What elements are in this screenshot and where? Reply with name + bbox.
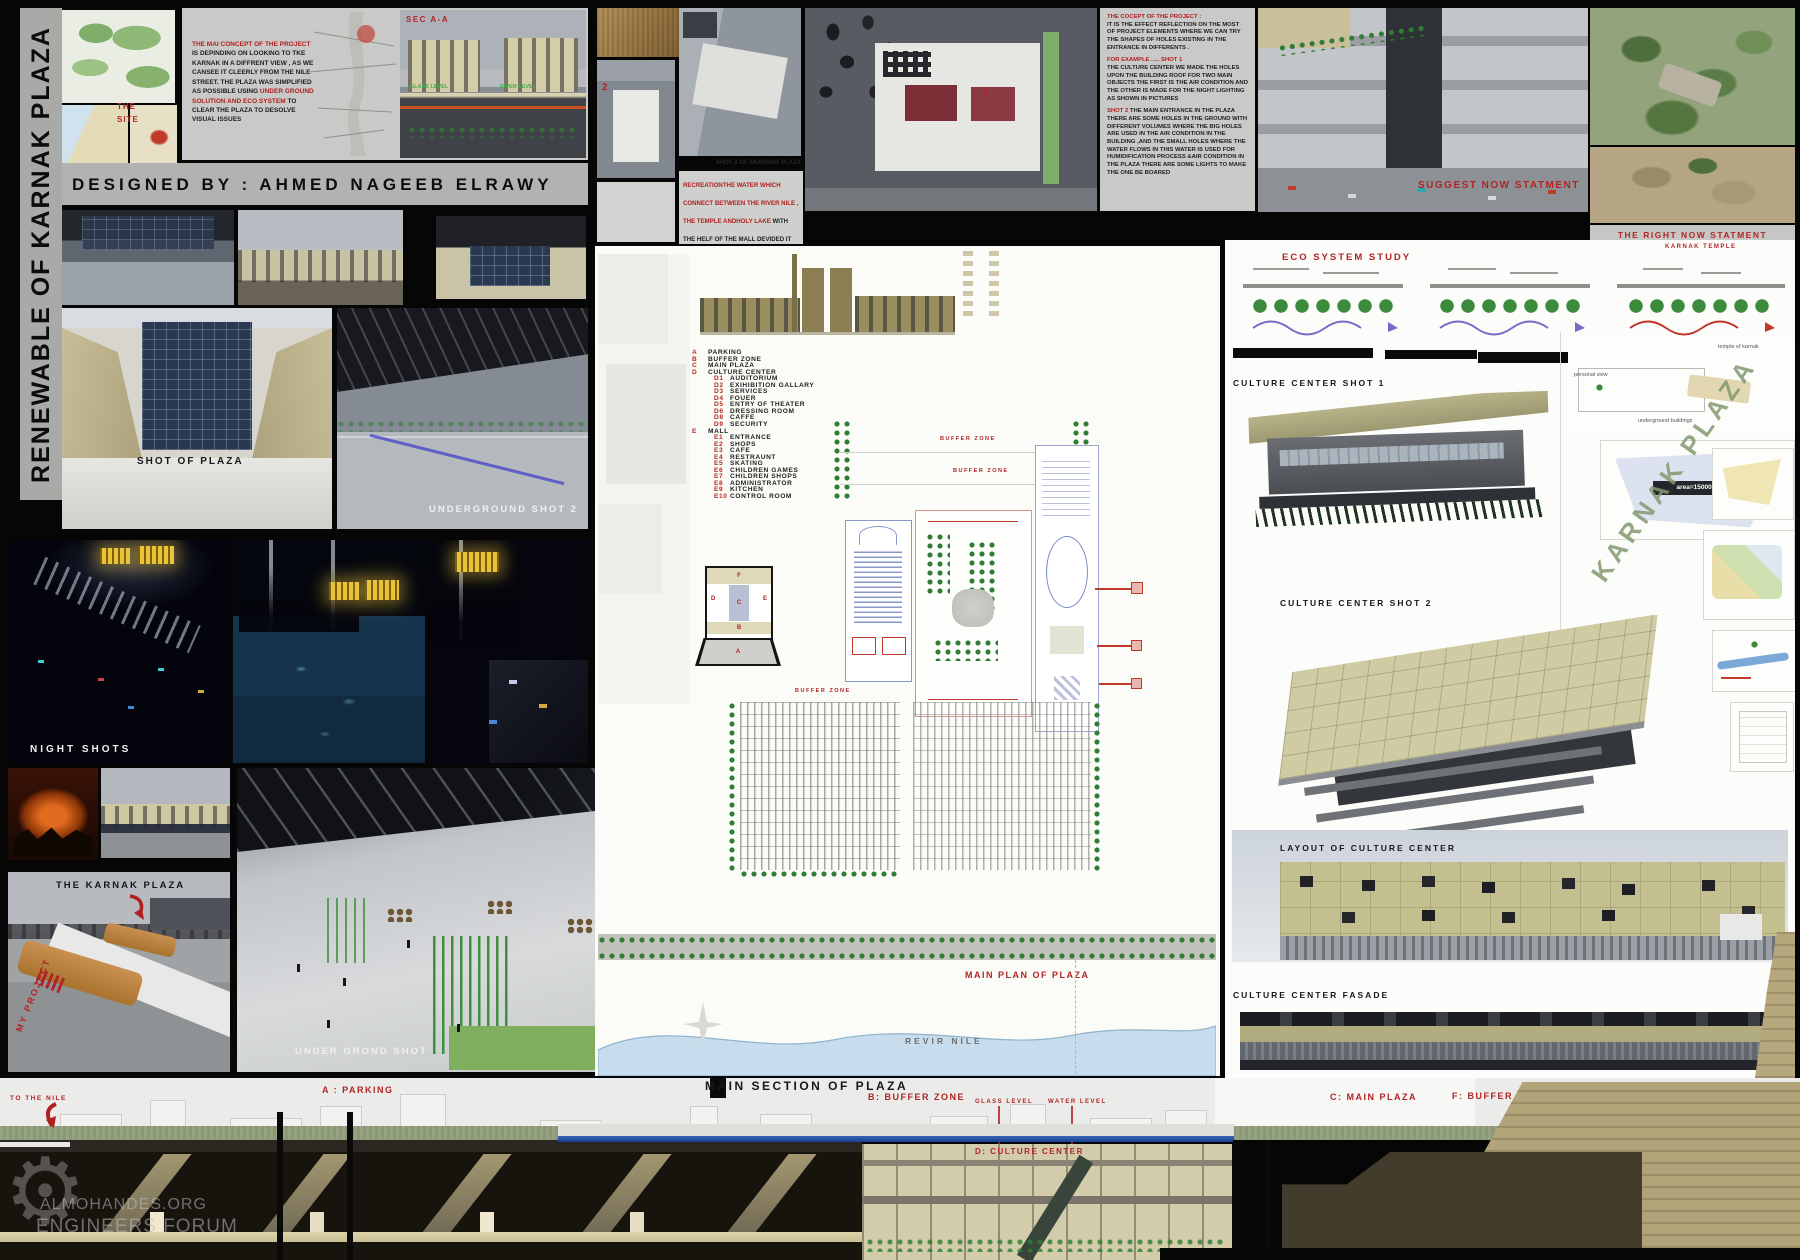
ramp-column — [721, 1154, 816, 1240]
green-strip — [1043, 32, 1059, 184]
nile-arrow-icon — [40, 1102, 62, 1128]
tree-cluster — [926, 533, 950, 597]
fasade-olive-band — [1240, 1026, 1788, 1042]
plants-row — [337, 420, 588, 432]
blank-panel — [597, 182, 675, 242]
fountain-blob — [952, 589, 994, 627]
river-label: REVIR NILE — [905, 1036, 983, 1046]
b-buffer-label: B: BUFFER ZONE — [868, 1092, 965, 1102]
funnel-sketch — [1723, 459, 1781, 505]
stage-arc — [859, 526, 897, 545]
fasade-top-band — [1240, 1012, 1788, 1026]
river-level-tag: RIVER LEVEL — [500, 84, 536, 90]
deck-line — [1243, 284, 1403, 288]
fasade-elevation-image — [1240, 1012, 1788, 1070]
temple-dark-silhouette — [1282, 1152, 1642, 1260]
water-line — [400, 106, 586, 109]
compass-star-icon — [683, 1002, 723, 1046]
karnak-temple-tag: KARNAK TEMPLE — [1665, 244, 1737, 250]
temple-wall-right — [855, 296, 955, 332]
section-post — [1266, 1140, 1271, 1260]
context-blocks-west — [598, 254, 690, 704]
night-shot-2 — [233, 540, 425, 763]
seat-rows — [854, 551, 902, 623]
shops-rows — [1042, 456, 1090, 516]
sec-aa-render: SEC A-A GLASS LEVEL RIVER LEVEL — [400, 10, 586, 158]
underground-shot2-caption: UNDERGROUND SHOT 2 — [429, 504, 578, 515]
section-trace-line — [1075, 960, 1077, 1074]
roof-light-dots — [509, 680, 517, 684]
bamboo-small — [327, 898, 372, 963]
glass-level-tag: GLASS LEVEL — [410, 84, 448, 90]
pylon-b — [830, 268, 852, 332]
dotted-colonnade — [963, 246, 973, 316]
concept-p3: THE MAIN ENTRANCE IN THE PLAZA THERE ARE… — [1107, 108, 1247, 175]
site-label: THE SITE — [117, 101, 139, 127]
mall-wing-plan — [1035, 445, 1099, 732]
site-sketch-box: temple of karnak personal view undergrou… — [1568, 338, 1793, 433]
concept-p1: IT IS THE EFFECT REFLECTION ON THE MOST … — [1107, 22, 1248, 53]
water-level-label: WATER LEVEL — [1048, 1099, 1107, 1105]
mini-diagram-4 — [1730, 702, 1794, 772]
road-band — [805, 188, 1097, 211]
layout-facade-image — [1280, 862, 1785, 960]
water-glints — [253, 630, 413, 760]
deck-line — [1430, 284, 1590, 288]
intro-panel: THE MAI CONCEPT OF THE PROJECT IS DEPIND… — [182, 8, 588, 160]
designed-by-text: DESIGNED BY : AHMED NAGEEB ELRAWY — [72, 175, 553, 195]
dark-building-cluster — [150, 898, 230, 930]
section-post — [277, 1112, 283, 1260]
shot-of-plaza-panel: SHOT OF PLAZA — [62, 308, 332, 529]
culture-shot1-caption: CULTURE CENTER SHOT 1 — [1233, 378, 1385, 388]
suggest-now-caption: SUGGEST NOW STATMENT — [1418, 180, 1580, 191]
recreation-text-block: RECREATIONTHE WATER WHICH CONNECT BETWEE… — [679, 171, 803, 244]
plaza-deck-band — [558, 1124, 1234, 1136]
obelisk — [792, 254, 797, 332]
lit-temple — [365, 580, 399, 600]
buffer-zone-label-2: BUFFER ZONE — [953, 468, 1009, 474]
eco-diagram-1 — [1243, 268, 1403, 340]
section-post — [1233, 1140, 1241, 1260]
temple-court-render — [101, 768, 230, 858]
karnak-plaza-panel: THE KARNAK PLAZA MY PROJECT — [8, 872, 230, 1072]
eco-diagram-2 — [1430, 268, 1590, 340]
designed-by-banner: DESIGNED BY : AHMED NAGEEB ELRAWY — [62, 163, 588, 205]
white-plaza-band — [692, 43, 787, 119]
fasade-base-band — [1240, 1060, 1788, 1070]
leader-target — [1131, 678, 1142, 689]
mini-diagram-1 — [1712, 448, 1794, 520]
deck-line — [1617, 284, 1785, 288]
leader-line — [1095, 588, 1133, 590]
legend-row: E10CONTROL ROOM — [692, 494, 910, 501]
tree-border — [740, 870, 900, 880]
mini-diagram-3 — [1712, 630, 1795, 692]
parking-lot-east — [913, 702, 1091, 870]
concept-panel: THE COCEPT OF THE PROJECT : IT IS THE EF… — [1100, 8, 1255, 211]
buffer-zone-label-1: BUFFER ZONE — [940, 436, 996, 442]
main-plan-caption: MAIN PLAN OF PLAZA — [965, 970, 1090, 980]
seating-cluster — [487, 900, 513, 914]
checker-court — [883, 51, 931, 77]
auditorium-plan — [845, 520, 912, 682]
nile-street-sketch — [304, 12, 400, 156]
leader-target — [1131, 640, 1142, 651]
night-shot-3 — [429, 540, 588, 763]
glass-level-label: GLASS LEVEL — [975, 1099, 1033, 1105]
zone-e: E — [763, 596, 767, 602]
under-grond-shot-caption: UNDER GROND SHOT — [295, 1046, 428, 1057]
dark-block — [683, 12, 717, 38]
presentation-board: RENEWABLE OF KARNAK PLAZA THE SITE THE M… — [0, 0, 1800, 1260]
ramp-column — [256, 1154, 351, 1240]
zone-d: D — [711, 596, 715, 602]
to-the-nile-label: TO THE NILE — [10, 1095, 67, 1102]
white-plaza — [613, 90, 659, 162]
plan-legend: APARKING BBUFFER ZONE CMAIN PLAZA DCULTU… — [692, 350, 910, 501]
main-section-title: MAIN SECTION OF PLAZA — [705, 1079, 908, 1093]
maroon-hall-2 — [971, 87, 1015, 121]
temple-slits — [101, 806, 230, 828]
leader-line — [1099, 683, 1133, 685]
eco-trees — [1251, 296, 1395, 318]
plaza-top-render-a: 2 — [597, 60, 675, 178]
the-karnak-plaza-caption: THE KARNAK PLAZA — [56, 880, 185, 891]
buffer-zone-label-3: BUFFER ZONE — [795, 688, 851, 694]
aerial-photo-now-2 — [1590, 147, 1795, 223]
colored-sketch — [1712, 545, 1782, 599]
concept-shot2: SHOT 2 — [1107, 108, 1128, 114]
main-plan-panel: APARKING BBUFFER ZONE CMAIN PLAZA DCULTU… — [595, 246, 1220, 1076]
green-planter — [449, 1026, 599, 1070]
dotted-colonnade — [989, 246, 999, 316]
culture-center-section-render — [862, 1144, 1232, 1260]
zone-c: C — [729, 585, 749, 621]
concept-p2: THE CULTURE CENTER WE MADE THE HOLES UPO… — [1107, 65, 1248, 103]
underground-shot2-panel: UNDERGROUND SHOT 2 — [337, 308, 588, 529]
plaza-top-render-b — [679, 8, 801, 156]
mini-diagram-2 — [1703, 530, 1795, 620]
stage-box — [882, 637, 906, 655]
tree-column-left — [833, 420, 853, 500]
night-shot-1 — [8, 540, 229, 763]
d-culture-label: D: CULTURE CENTER — [975, 1147, 1084, 1156]
white-plaza-plan — [875, 43, 1040, 171]
entry-hatch — [1054, 676, 1080, 700]
site-label-site: SITE — [117, 114, 139, 127]
red-dash — [1721, 677, 1751, 679]
eco-study-title: ECO SYSTEM STUDY — [1282, 252, 1411, 263]
watermark-forum: ENGINEERS FORUM — [36, 1216, 238, 1238]
green-court — [1050, 626, 1084, 654]
dark-plaza — [489, 660, 588, 763]
red-arrow-icon — [126, 894, 148, 920]
fasade-caption: CULTURE CENTER FASADE — [1233, 990, 1389, 1000]
eco-trees — [1627, 296, 1773, 318]
fire-night-image — [8, 768, 98, 860]
roof-light-dots — [38, 660, 44, 663]
micro-label-dashes — [1643, 268, 1683, 270]
slab-line — [862, 1160, 1232, 1166]
zone-f: F — [707, 568, 771, 584]
c-main-plaza-label: C: MAIN PLAZA — [1330, 1092, 1417, 1102]
red-guide — [928, 699, 1018, 700]
river-line-sketch — [1717, 652, 1789, 670]
render-aerial-3 — [436, 216, 586, 299]
skating-oval — [1046, 536, 1088, 608]
ground-line — [700, 332, 955, 335]
section-post — [347, 1112, 353, 1260]
bus-lot — [1657, 63, 1722, 108]
ramp-column — [576, 1154, 671, 1240]
airflow-arrows-icon — [1248, 316, 1398, 336]
pylon-a — [802, 268, 824, 332]
eco-diagram-3 — [1617, 268, 1785, 340]
eco-trees — [1438, 296, 1582, 318]
airflow-arrows-icon — [1625, 316, 1775, 336]
personal-view-label: personal view — [1574, 372, 1608, 378]
lit-runway — [33, 557, 201, 654]
render-interior-1 — [62, 210, 234, 305]
temple-wall-left — [700, 298, 800, 332]
right-column-panel: ECO SYSTEM STUDY KARNAK TEMPLE — [1225, 240, 1795, 1078]
suggest-now-render: SUGGEST NOW STATMENT — [1258, 8, 1588, 212]
seating-cluster — [387, 908, 413, 922]
road-trees-north — [598, 936, 1216, 945]
shot-of-plaza-caption: SHOT OF PLAZA — [137, 456, 244, 467]
intro-concept-text: THE MAI CONCEPT OF THE PROJECT IS DEPIND… — [192, 40, 314, 125]
ramp-column — [416, 1154, 511, 1240]
facade-dark-windows — [1300, 876, 1313, 887]
world-map-image — [62, 10, 175, 103]
vertical-title-bar: RENEWABLE OF KARNAK PLAZA — [20, 8, 62, 500]
marker-2: 2 — [602, 82, 609, 93]
right-now-caption: THE RIGHT NOW STATMENT — [1618, 230, 1767, 240]
red-guide — [928, 521, 1018, 522]
culture-shot1-render — [1238, 390, 1562, 533]
a-parking-label: A : PARKING — [322, 1085, 394, 1095]
zone-a: A — [699, 640, 777, 664]
glass-entrance — [142, 322, 252, 450]
big-top-view-render: 1 — [805, 8, 1097, 211]
temple-of-karnak-label: temple of karnak — [1718, 344, 1759, 350]
lit-temple — [100, 548, 130, 564]
tree-border — [1093, 702, 1104, 872]
road-trees-south — [598, 952, 1216, 961]
layout-caption: LAYOUT OF CULTURE CENTER — [1280, 843, 1456, 853]
tree-border — [728, 702, 739, 872]
zone-b: B — [707, 622, 771, 634]
shot2-karnak-caption: SHOT 2 OF AKARNAK PLAZA — [679, 160, 801, 166]
airflow-arrows-icon — [1435, 316, 1585, 336]
lit-temple — [455, 552, 499, 572]
concept-title: THE COCEPT OF THE PROJECT : — [1107, 14, 1248, 22]
parking-lot-west — [740, 702, 900, 870]
facade-slits — [238, 250, 403, 282]
micro-label-dashes — [1448, 268, 1496, 270]
maroon-hall — [905, 85, 957, 121]
section-base-shadow — [1160, 1248, 1800, 1260]
slab-line — [862, 1196, 1232, 1204]
glass-water-blue-line — [558, 1136, 1234, 1142]
divider-bar — [1233, 348, 1373, 358]
board-title: RENEWABLE OF KARNAK PLAZA — [27, 26, 56, 483]
aerial-photo-now-1 — [1590, 8, 1795, 145]
hatch-sketch — [1739, 711, 1787, 763]
blue-cable — [370, 434, 565, 485]
fasade-glazing-band — [1240, 1042, 1788, 1060]
glass-court — [470, 246, 550, 286]
intro-text-red1: THE MAI CONCEPT OF THE PROJECT — [192, 41, 310, 48]
tree-dot — [1596, 384, 1603, 391]
zone-a-outer: A — [695, 638, 781, 666]
trees-row — [408, 126, 578, 138]
lit-temple — [138, 546, 174, 564]
tree-dot — [1751, 641, 1758, 648]
facade-white-block — [1720, 914, 1762, 940]
temple-silhouette — [14, 826, 92, 856]
karnak-temple-drawing — [700, 252, 955, 337]
sculpture-zone-plan — [915, 510, 1032, 717]
culture-shot2-caption: CULTURE CENTER SHOT 2 — [1280, 598, 1432, 608]
watermark-site: ALMOHANDES.ORG — [40, 1196, 207, 1214]
night-shots-caption: NIGHT SHOTS — [30, 744, 131, 755]
marker-1: 1 — [983, 86, 990, 97]
plaza-floor — [62, 458, 332, 529]
leader-line — [1097, 645, 1133, 647]
people-silhouettes — [297, 964, 300, 972]
zone-key-diagram: F D C E B — [705, 566, 773, 640]
sec-aa-label: SEC A-A — [406, 15, 449, 24]
micro-label-dashes — [1253, 268, 1309, 270]
underground-buildings-label: underground buildings — [1638, 418, 1692, 424]
divider-bar — [1385, 350, 1477, 359]
concept-example: FOR EXAMPLE ..... SHOT 1 — [1107, 57, 1248, 65]
right-now-strip: THE RIGHT NOW STATMENT — [1590, 225, 1795, 240]
render-exterior-2 — [238, 210, 403, 305]
leader-target — [1131, 582, 1143, 594]
seating-cluster — [567, 918, 597, 934]
cars — [1288, 186, 1296, 190]
tree-cluster — [934, 639, 998, 661]
facade-glazing-base — [1280, 936, 1785, 960]
site-label-the: THE — [117, 101, 139, 114]
stage-box — [852, 637, 876, 655]
glass-roof — [82, 216, 214, 250]
canopy-structure — [337, 308, 588, 392]
lit-temple — [329, 582, 359, 600]
